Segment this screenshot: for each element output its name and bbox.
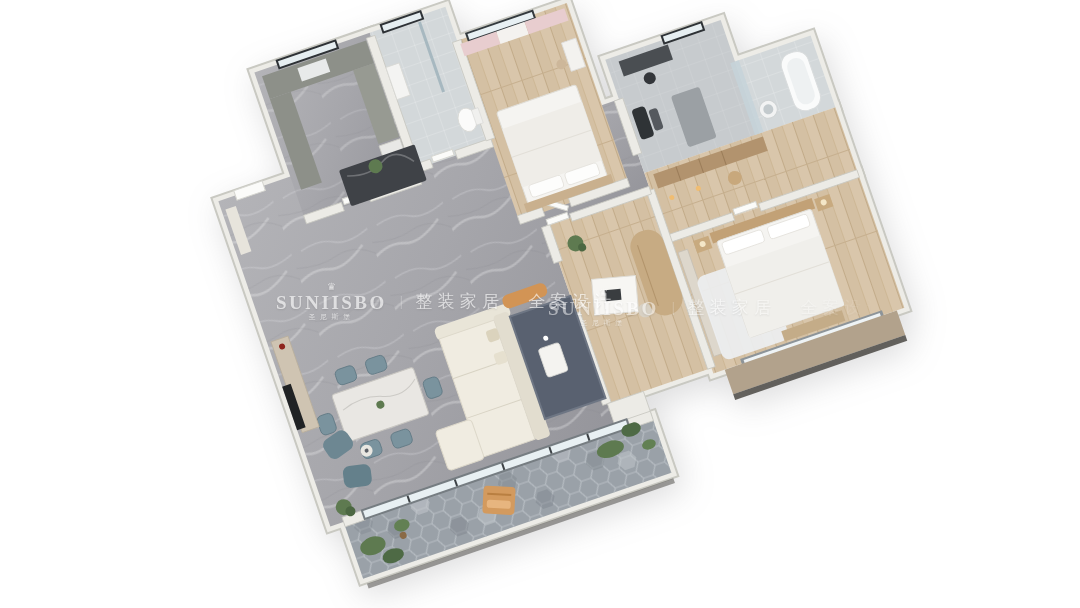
floorplan-3d-render [0, 0, 1080, 608]
lounge-chair [482, 485, 515, 515]
armchair [342, 463, 372, 488]
floorplan-stage: ♛ SUNIISBO 圣尼斯堡 | 整装家居 全案设计 ♛ SUNIISBO 圣… [0, 0, 1080, 608]
laptop [605, 289, 622, 301]
